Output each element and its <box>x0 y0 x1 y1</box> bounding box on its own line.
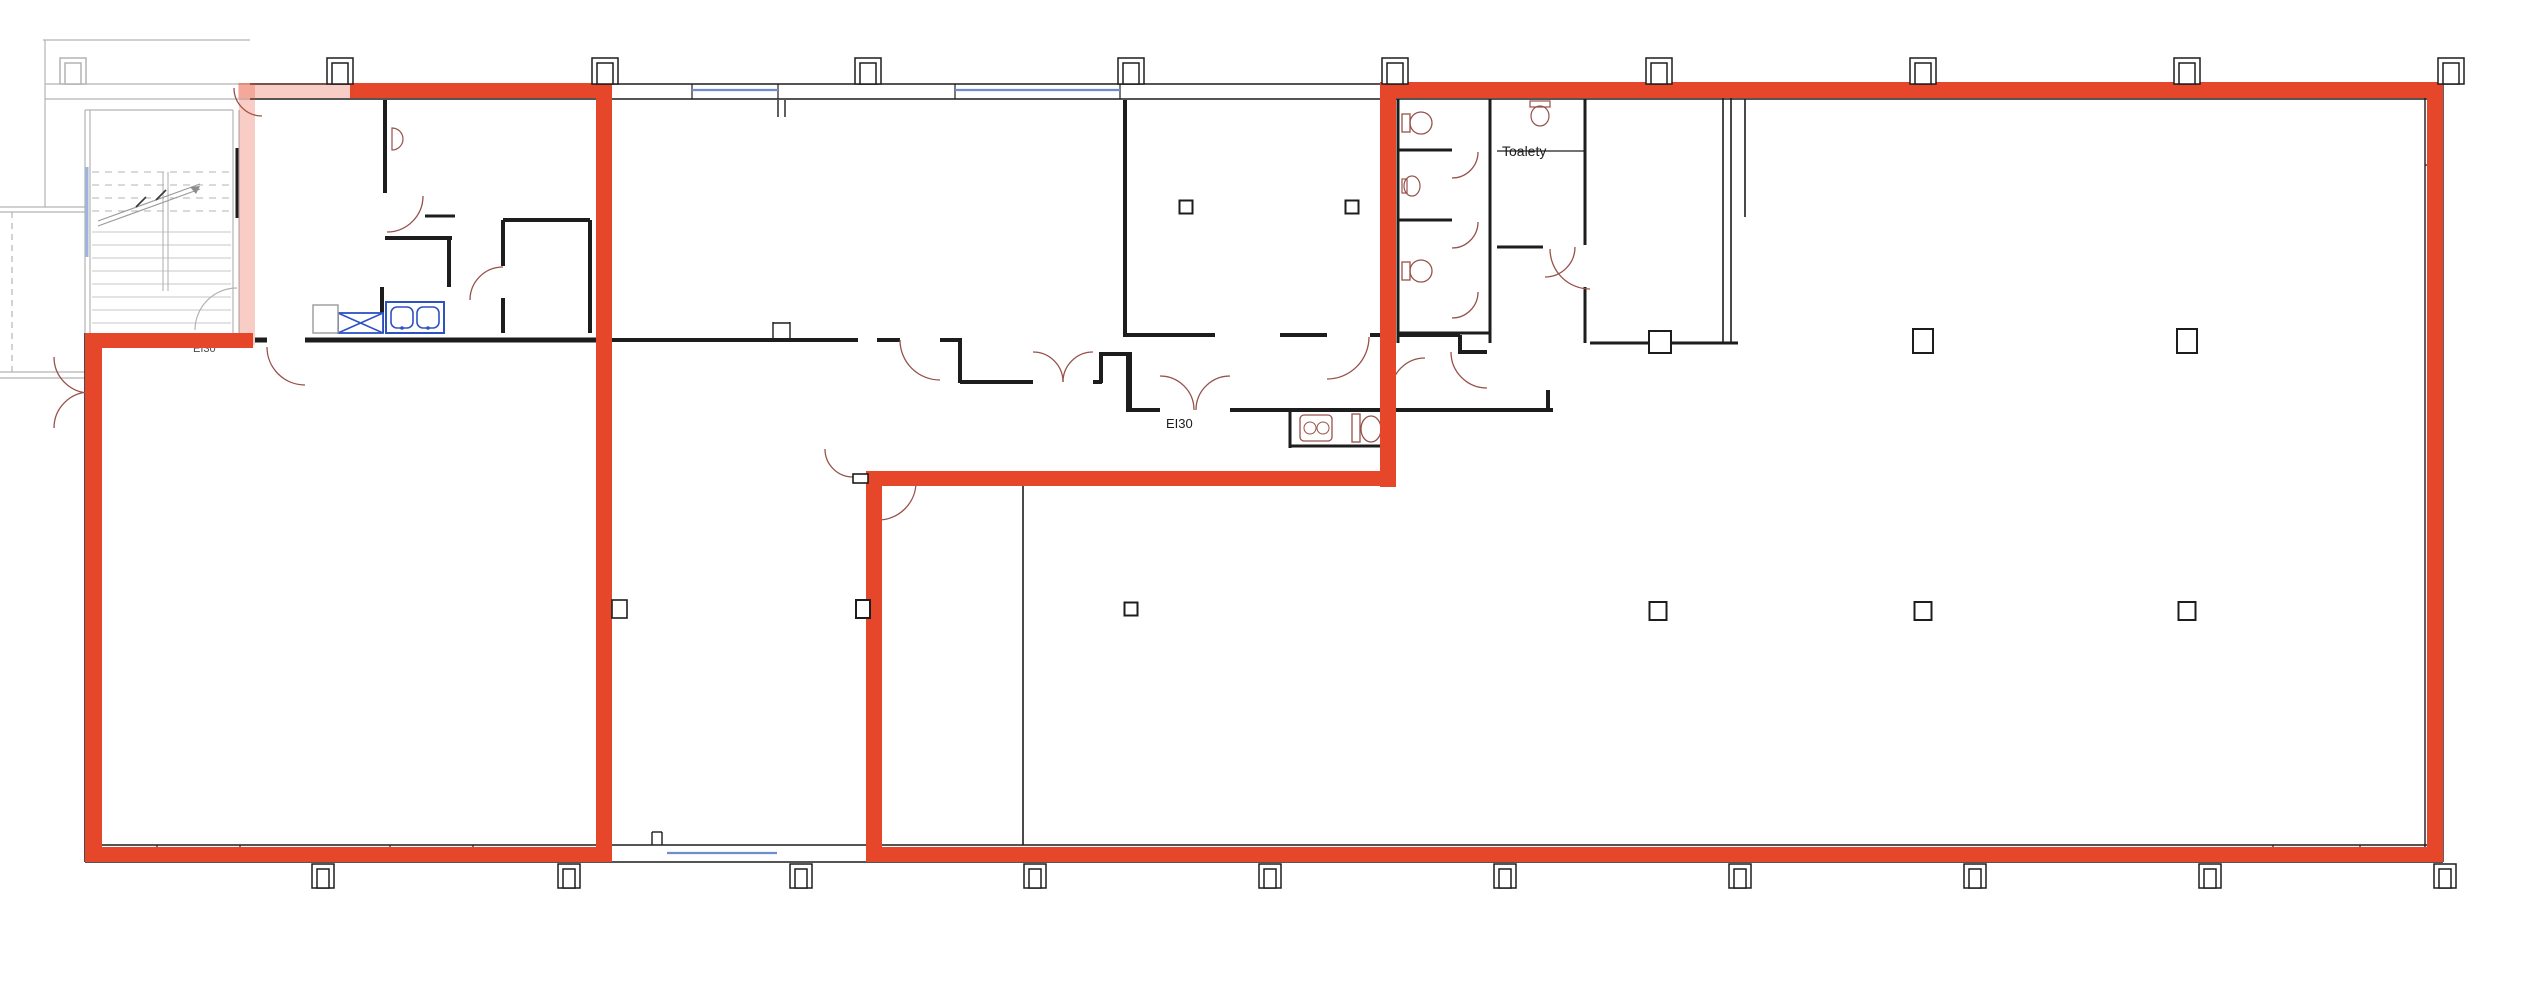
door-swing-arc <box>1033 352 1063 382</box>
structural-column-core <box>317 869 329 888</box>
stair-door-arc <box>195 288 237 330</box>
door-swing-arc <box>878 482 916 520</box>
lease-area-highlight-outline <box>85 333 102 862</box>
free-standing-column <box>1915 602 1932 620</box>
ei30-middle-label: EI30 <box>1166 416 1193 431</box>
wc-room-basin-bowl <box>1304 422 1316 434</box>
door-swing-arc <box>1391 358 1425 392</box>
lease-area-highlight-outline <box>866 471 1396 486</box>
floor-plan-canvas: EI30EI30Toalety <box>0 0 2541 994</box>
lease-area-highlight-outline <box>596 83 612 862</box>
structural-column-core <box>860 63 876 84</box>
door-swing-arc <box>267 347 305 385</box>
free-standing-column <box>1180 201 1193 214</box>
door-swing-arc <box>1451 352 1487 388</box>
structural-column-core <box>2439 869 2451 888</box>
door-swing-arc <box>1550 249 1590 289</box>
structural-column-core <box>1734 869 1746 888</box>
stair-direction-line <box>98 189 200 226</box>
free-standing-column <box>856 600 870 618</box>
free-standing-column <box>1650 602 1667 620</box>
free-standing-column <box>1913 329 1933 353</box>
kitchen-sink-tap <box>426 326 430 330</box>
door-swing-arc <box>387 196 423 232</box>
structural-column-core <box>65 63 81 84</box>
floor-plan-drawing: EI30EI30Toalety <box>0 0 2541 994</box>
structural-column-core <box>2179 63 2195 84</box>
counter-cabinet <box>313 305 338 333</box>
structural-column-core <box>1915 63 1931 84</box>
kitchen-sink-tap <box>400 326 404 330</box>
door-swing-arc <box>470 267 503 300</box>
door-jamb <box>853 474 868 483</box>
toilet-wc-bowl <box>1410 260 1432 282</box>
wall-basin-fixture <box>392 128 403 150</box>
toalety-label: Toalety <box>1502 143 1546 159</box>
door-swing-arc <box>1160 376 1194 410</box>
door-swing-arc <box>1452 292 1478 318</box>
wc-room-basin-bowl <box>1317 422 1329 434</box>
toilet-wc-fixture <box>1402 114 1410 132</box>
structural-column-core <box>2204 869 2216 888</box>
stair-direction-line <box>98 184 200 221</box>
door-swing-arc <box>1452 152 1478 178</box>
door-swing-arc <box>825 449 853 477</box>
lease-area-highlight-outline <box>866 847 2443 862</box>
structural-column-core <box>1387 63 1403 84</box>
lease-area-highlight-outline <box>1380 82 1396 487</box>
lease-area-highlight-outline <box>85 333 253 348</box>
lease-area-highlight-outline-faded <box>239 83 255 345</box>
lease-area-highlight-outline <box>350 83 612 98</box>
door-swing-arc <box>1452 222 1478 248</box>
lease-area-highlight-outline <box>2427 82 2443 862</box>
free-standing-column <box>1346 201 1359 214</box>
structural-column-core <box>1969 869 1981 888</box>
free-standing-column <box>2177 329 2197 353</box>
structural-column-core <box>1651 63 1667 84</box>
door-swing-arc <box>1063 352 1093 382</box>
structural-column-core <box>332 63 348 84</box>
structural-column-core <box>1499 869 1511 888</box>
free-standing-column <box>1649 331 1671 353</box>
urinal-bowl <box>1531 106 1549 126</box>
door-swing-arc <box>900 340 940 380</box>
structural-column-core <box>1123 63 1139 84</box>
free-standing-column <box>2179 602 2196 620</box>
door-swing-arc <box>1196 376 1230 410</box>
lease-area-highlight-outline <box>866 471 882 862</box>
free-standing-column <box>1125 603 1138 616</box>
lease-area-highlight-outline-faded <box>238 83 354 98</box>
structural-column-core <box>2443 63 2459 84</box>
structural-column-core <box>563 869 575 888</box>
structural-column-core <box>795 869 807 888</box>
door-jamb <box>612 600 627 618</box>
structural-column-core <box>1029 869 1041 888</box>
wc-room-toilet-cistern <box>1352 414 1360 442</box>
lease-area-highlight-outline <box>85 847 612 862</box>
structural-column-core <box>1264 869 1276 888</box>
toilet-wc-fixture <box>1402 262 1410 280</box>
door-swing-arc <box>1327 337 1369 379</box>
toilet-wc-bowl <box>1410 112 1432 134</box>
wc-room-toilet-bowl <box>1361 416 1381 442</box>
structural-column-core <box>597 63 613 84</box>
